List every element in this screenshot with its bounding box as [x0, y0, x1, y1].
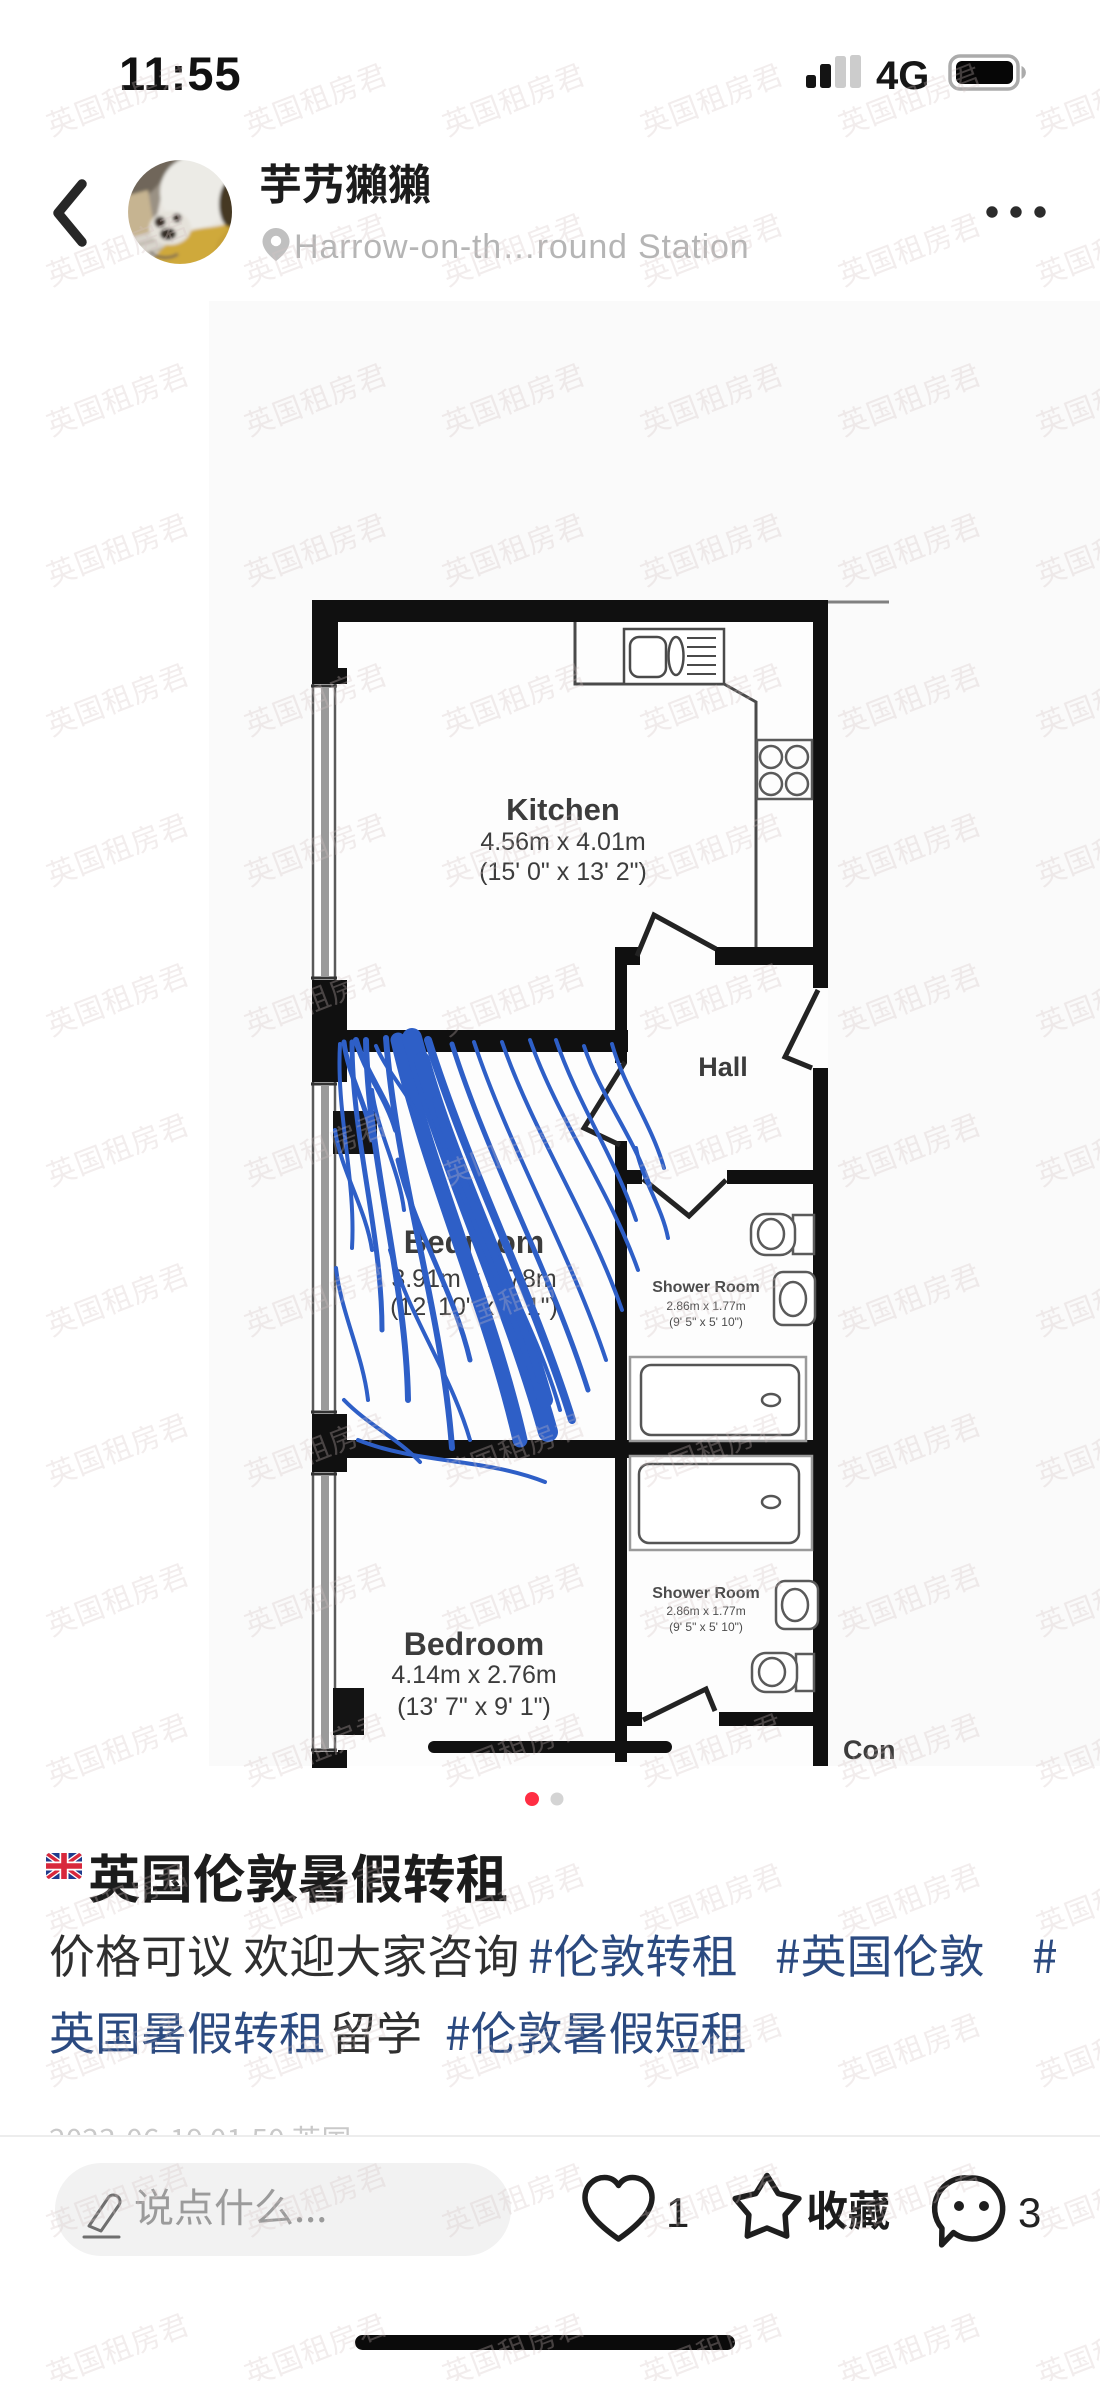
svg-text:4G: 4G: [876, 54, 929, 98]
svg-text:(15' 0" x 13' 2"): (15' 0" x 13' 2"): [479, 858, 647, 886]
svg-text:Kitchen: Kitchen: [506, 792, 620, 827]
svg-text:Hall: Hall: [698, 1052, 748, 1082]
svg-text:Bedroom: Bedroom: [404, 1626, 544, 1662]
svg-text:(13' 7" x 9' 1"): (13' 7" x 9' 1"): [397, 1693, 551, 1721]
svg-text:4.14m x 2.76m: 4.14m x 2.76m: [391, 1661, 556, 1689]
svg-text:3: 3: [1018, 2189, 1041, 2236]
